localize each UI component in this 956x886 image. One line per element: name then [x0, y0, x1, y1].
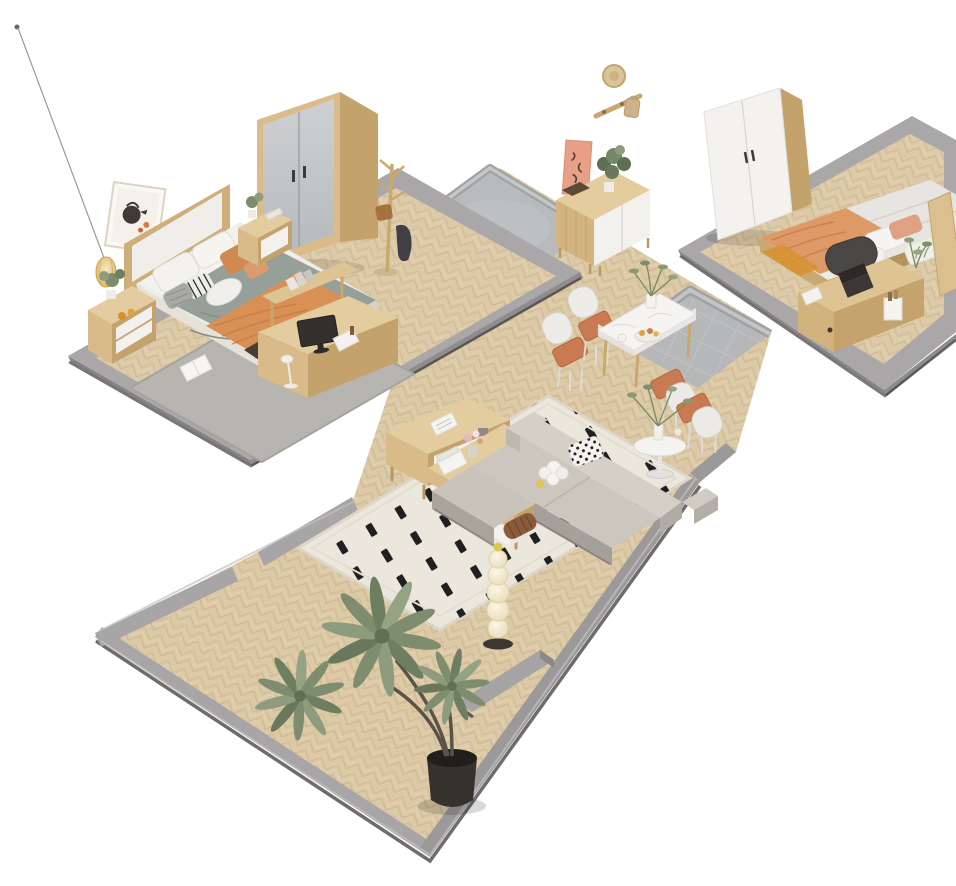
- apartment-render-stage: [0, 0, 956, 886]
- deco-ball: [675, 429, 682, 436]
- desk-bottle: [350, 326, 354, 335]
- wardrobe-handle-right: [303, 166, 306, 178]
- apartment-isometric-render: [0, 0, 956, 886]
- fruit-2: [128, 309, 135, 316]
- hallway-sideboard-group: [556, 65, 650, 276]
- plant-pot: [106, 290, 116, 299]
- desk2-knob: [828, 328, 833, 333]
- lamp-base: [483, 639, 513, 650]
- pillow-yellow-ball: [536, 480, 544, 488]
- pendant-cord: [18, 28, 104, 258]
- hanging-bag: [624, 98, 640, 118]
- wardrobe-handle-left: [292, 170, 295, 182]
- pendant-lamp: [15, 25, 117, 288]
- hanging-bag: [375, 204, 393, 222]
- wardrobe2-front: [704, 88, 792, 240]
- table-cup: [618, 334, 626, 342]
- fruit-1: [118, 312, 126, 320]
- hanging-wall-rack: [596, 65, 641, 118]
- lamp-bead-5: [489, 550, 507, 568]
- centerpiece-vase: [646, 294, 656, 308]
- lamp-top-disc: [494, 543, 503, 552]
- plant-pot: [604, 182, 614, 192]
- wardrobe-side: [340, 92, 378, 242]
